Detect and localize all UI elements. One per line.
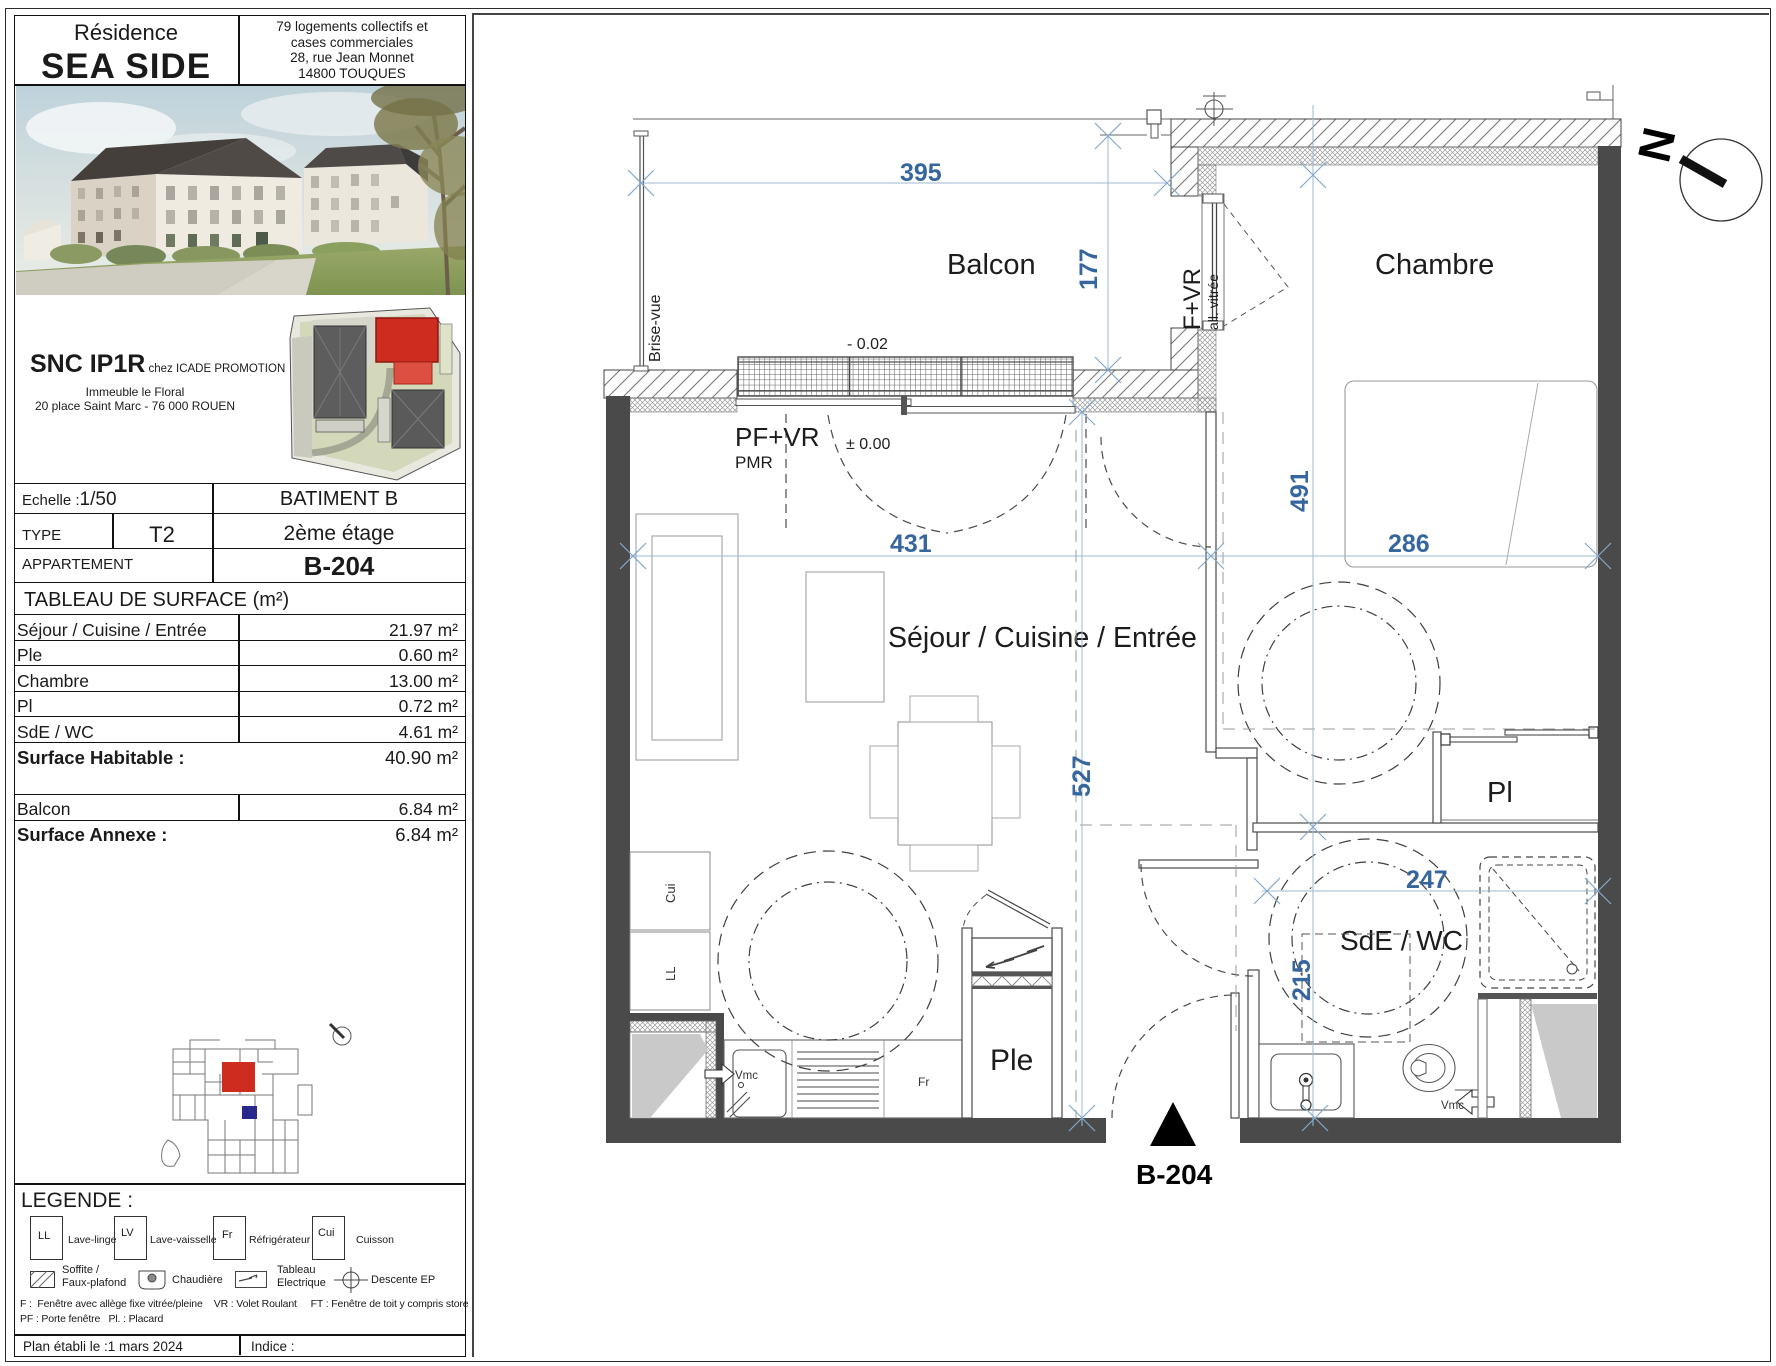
svg-text:± 0.00: ± 0.00 [846, 436, 890, 453]
svg-text:B-204: B-204 [1136, 1159, 1213, 1190]
svg-text:Vmc: Vmc [735, 1070, 758, 1082]
svg-text:all. vitrée: all. vitrée [1205, 274, 1221, 330]
svg-text:491: 491 [1286, 470, 1314, 512]
svg-text:PF+VR: PF+VR [735, 422, 820, 452]
svg-text:215: 215 [1288, 959, 1316, 1001]
svg-text:247: 247 [1406, 866, 1448, 894]
svg-text:N: N [1628, 123, 1686, 167]
svg-text:395: 395 [900, 159, 942, 187]
svg-text:- 0.02: - 0.02 [847, 336, 888, 353]
svg-text:Brise-vue: Brise-vue [647, 294, 664, 362]
svg-text:286: 286 [1388, 530, 1430, 558]
svg-text:F+VR: F+VR [1179, 268, 1206, 330]
svg-text:Balcon: Balcon [947, 249, 1036, 281]
svg-text:Séjour / Cuisine / Entrée: Séjour / Cuisine / Entrée [888, 622, 1197, 654]
svg-text:Fr: Fr [918, 1075, 929, 1089]
svg-text:Cui: Cui [663, 883, 678, 903]
svg-text:Chambre: Chambre [1375, 249, 1494, 281]
svg-text:Ple: Ple [990, 1044, 1033, 1077]
svg-text:PMR: PMR [735, 453, 773, 472]
svg-text:177: 177 [1075, 248, 1103, 290]
svg-text:Vmc: Vmc [1441, 1100, 1464, 1112]
svg-text:431: 431 [890, 530, 932, 558]
svg-text:Pl: Pl [1487, 777, 1513, 809]
svg-text:527: 527 [1068, 755, 1096, 797]
svg-text:LL: LL [663, 967, 678, 981]
